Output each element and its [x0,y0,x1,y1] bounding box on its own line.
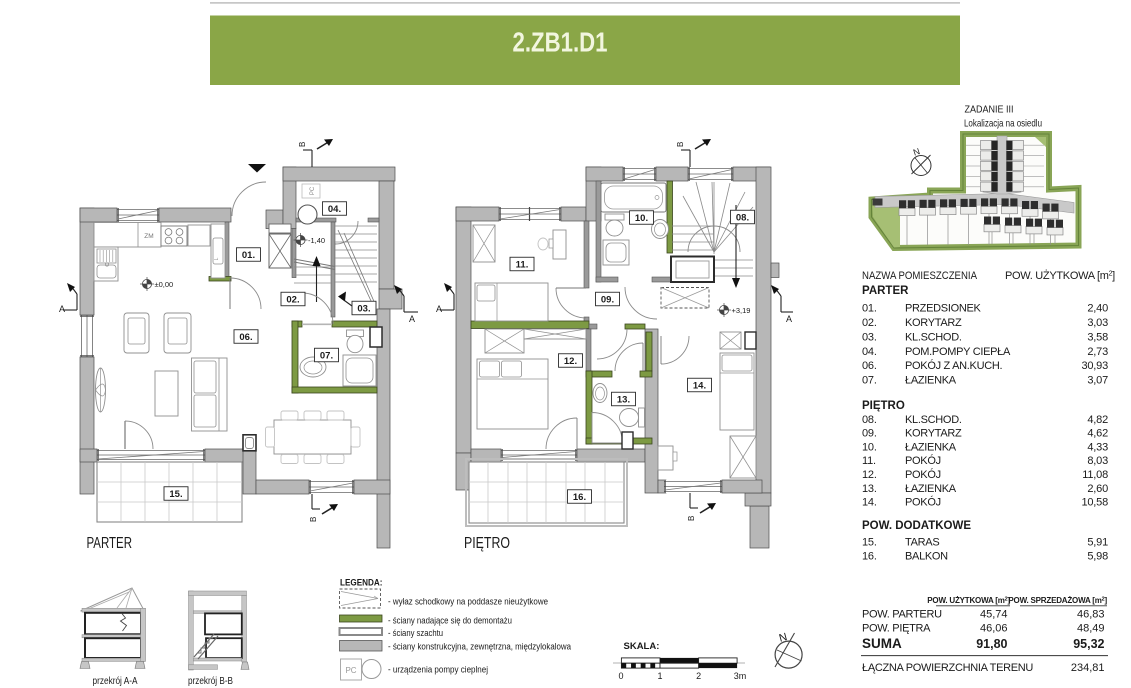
svg-text:3,07: 3,07 [1087,375,1108,387]
svg-text:3m: 3m [734,671,747,681]
svg-text:POW. UŻYTKOWA [m2]: POW. UŻYTKOWA [m2] [1005,269,1115,282]
svg-text:12.: 12. [564,356,577,367]
svg-text:06.: 06. [862,360,877,372]
svg-text:10,58: 10,58 [1081,497,1108,509]
svg-text:08.: 08. [862,414,877,426]
svg-text:- wyłaz schodkowy na poddasze: - wyłaz schodkowy na poddasze nieużytkow… [388,597,548,607]
svg-text:04.: 04. [862,346,877,358]
svg-text:10.: 10. [862,441,877,453]
svg-text:- ściany szachtu: - ściany szachtu [388,628,443,638]
svg-text:PRZEDSIONEK: PRZEDSIONEK [905,303,982,315]
svg-text:46,83: 46,83 [1077,609,1105,621]
svg-text:A: A [436,304,442,314]
svg-text:ŁAZIENKA: ŁAZIENKA [905,375,957,387]
svg-text:04.: 04. [328,204,341,215]
svg-text:POW. PIĘTRA: POW. PIĘTRA [862,622,931,634]
svg-text:KORYTARZ: KORYTARZ [905,428,962,440]
svg-text:03.: 03. [862,331,877,343]
svg-text:POKÓJ: POKÓJ [905,468,941,481]
svg-text:11.: 11. [862,455,876,467]
svg-text:POW. SPRZEDAŻOWA [m2]: POW. SPRZEDAŻOWA [m2] [1008,596,1107,605]
svg-text:B: B [309,517,318,522]
svg-text:08.: 08. [736,213,749,224]
svg-text:10.: 10. [635,213,648,224]
svg-text:PC: PC [345,666,356,675]
svg-text:Lokalizacja na osiedlu: Lokalizacja na osiedlu [964,118,1042,130]
svg-text:A: A [59,304,65,314]
svg-text:01.: 01. [242,250,255,261]
svg-text:ŁAZIENKA: ŁAZIENKA [905,441,957,453]
svg-text:11.: 11. [516,260,529,271]
svg-text:ŁĄCZNA POWIERZCHNIA TERENU: ŁĄCZNA POWIERZCHNIA TERENU [862,662,1033,674]
svg-text:15.: 15. [862,537,877,549]
svg-text:2.ZB1.D1: 2.ZB1.D1 [513,27,608,58]
svg-text:13.: 13. [617,395,630,406]
svg-text:3,03: 3,03 [1087,317,1108,329]
svg-text:N: N [912,146,921,158]
svg-text:2,60: 2,60 [1087,483,1108,495]
svg-text:PARTER: PARTER [862,285,909,297]
svg-text:11,08: 11,08 [1082,469,1108,481]
svg-text:48,49: 48,49 [1077,622,1105,634]
svg-text:02.: 02. [286,295,299,306]
svg-text:06.: 06. [239,332,252,343]
svg-text:LEGENDA:: LEGENDA: [340,578,383,589]
svg-text:+3,19: +3,19 [732,306,751,315]
svg-text:03.: 03. [357,304,370,315]
svg-text:14.: 14. [862,497,877,509]
svg-text:14.: 14. [693,381,706,392]
svg-text:3,58: 3,58 [1087,331,1108,343]
svg-text:BALKON: BALKON [905,550,948,562]
svg-text:-1,40: -1,40 [308,236,325,245]
svg-text:KL.SCHOD.: KL.SCHOD. [905,331,962,343]
svg-text:L: L [214,257,220,260]
svg-text:PIĘTRO: PIĘTRO [862,400,905,412]
svg-text:4,82: 4,82 [1087,414,1108,426]
svg-text:45,74: 45,74 [980,609,1008,621]
svg-text:POW. DODATKOWE: POW. DODATKOWE [862,520,971,532]
svg-text:8,03: 8,03 [1087,455,1108,467]
svg-text:B: B [298,142,307,147]
svg-text:07.: 07. [862,375,877,387]
svg-text:2,40: 2,40 [1087,303,1108,315]
svg-text:12.: 12. [862,469,877,481]
svg-text:0: 0 [618,671,623,681]
svg-text:PARTER: PARTER [87,535,133,552]
svg-text:TARAS: TARAS [905,537,939,549]
svg-text:POKÓJ Z AN.KUCH.: POKÓJ Z AN.KUCH. [905,359,1003,372]
svg-text:5,91: 5,91 [1087,537,1108,549]
svg-text:KL.SCHOD.: KL.SCHOD. [905,414,962,426]
svg-text:91,80: 91,80 [976,637,1007,651]
svg-text:- ściany nadające się do demon: - ściany nadające się do demontażu [388,616,512,626]
svg-text:2,73: 2,73 [1087,346,1108,358]
svg-text:KORYTARZ: KORYTARZ [905,317,962,329]
svg-text:±0,00: ±0,00 [155,280,174,289]
svg-text:A: A [786,314,792,324]
svg-text:- urządzenia pompy cieplnej: - urządzenia pompy cieplnej [388,665,488,675]
svg-text:POW. PARTERU: POW. PARTERU [862,609,942,621]
svg-text:16.: 16. [573,492,586,503]
svg-text:2: 2 [696,671,701,681]
svg-text:PC: PC [310,186,316,195]
svg-text:N: N [778,631,789,645]
svg-text:13.: 13. [862,483,877,495]
svg-text:POM.POMPY CIEPŁA: POM.POMPY CIEPŁA [905,346,1011,358]
svg-text:POKÓJ: POKÓJ [905,454,941,467]
svg-text:PIĘTRO: PIĘTRO [464,535,510,552]
svg-text:SUMA: SUMA [862,636,902,651]
svg-text:ŁAZIENKA: ŁAZIENKA [905,483,957,495]
svg-text:- ściany konstrukcyjna, zewnęt: - ściany konstrukcyjna, zewnętrzna, międ… [388,642,571,652]
svg-text:16.: 16. [862,550,877,562]
svg-text:4,62: 4,62 [1087,428,1108,440]
svg-text:5,98: 5,98 [1087,550,1108,562]
svg-text:B: B [676,142,685,147]
svg-text:A: A [409,314,415,324]
svg-text:NAZWA POMIESZCZENIA: NAZWA POMIESZCZENIA [862,270,978,282]
svg-text:95,32: 95,32 [1073,637,1104,651]
svg-text:01.: 01. [862,303,877,315]
svg-text:SKALA:: SKALA: [624,641,660,652]
svg-text:234,81: 234,81 [1071,662,1105,674]
svg-text:30,93: 30,93 [1081,360,1108,372]
svg-text:1: 1 [657,671,662,681]
svg-text:ZM: ZM [144,233,153,240]
svg-text:07.: 07. [320,351,333,362]
svg-text:02.: 02. [862,317,877,329]
svg-text:46,06: 46,06 [980,622,1008,634]
svg-text:przekrój A-A: przekrój A-A [93,675,138,687]
svg-text:15.: 15. [169,489,182,500]
svg-text:4,33: 4,33 [1087,441,1108,453]
svg-text:POKÓJ: POKÓJ [905,496,941,509]
svg-text:09.: 09. [862,428,877,440]
svg-text:ZADANIE III: ZADANIE III [965,104,1014,116]
svg-text:przekrój B-B: przekrój B-B [188,675,233,687]
svg-text:POW. UŻYTKOWA [m2]: POW. UŻYTKOWA [m2] [927,596,1010,605]
svg-text:09.: 09. [601,295,614,306]
svg-text:B: B [687,516,696,521]
